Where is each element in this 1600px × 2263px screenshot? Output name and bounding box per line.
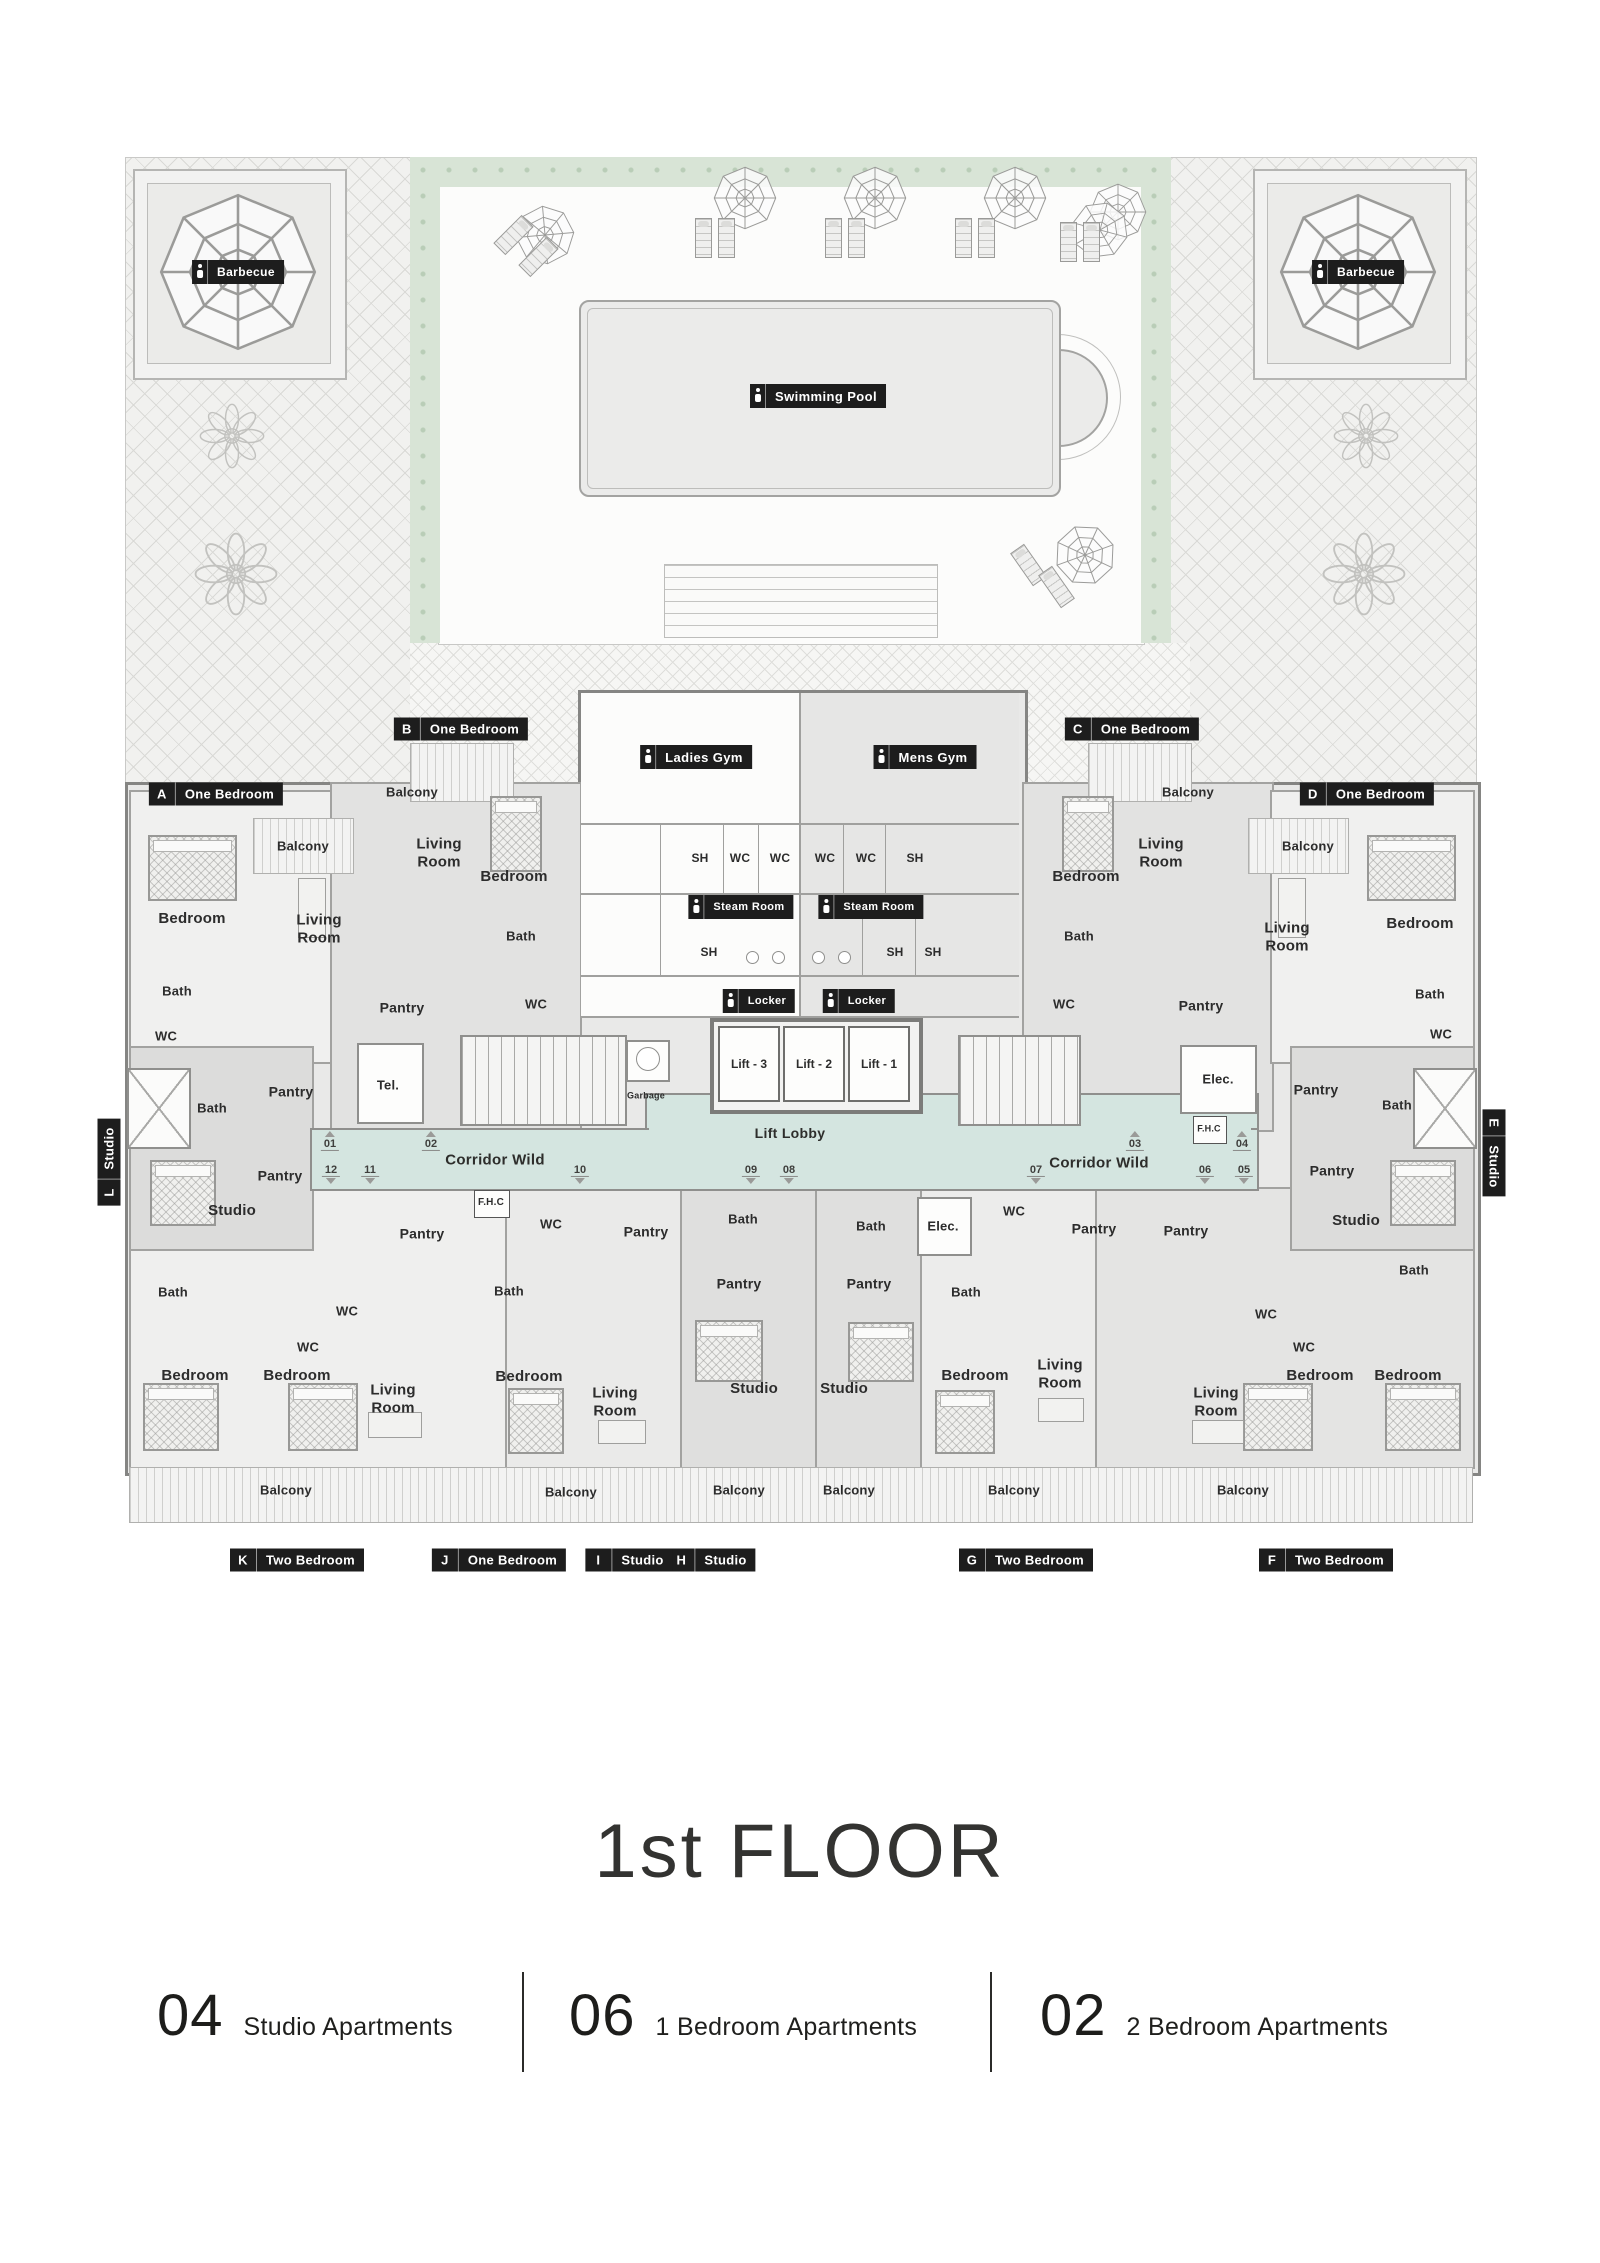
room-label-pantry: Pantry [1179,998,1224,1015]
room-label-bath: Bath [162,983,192,998]
room-label-balcony: Balcony [823,1482,875,1497]
unit-tag-e: EStudio [1483,1109,1506,1196]
room-label-pantry: Pantry [380,1000,425,1017]
room-label-balcony: Balcony [1282,838,1334,853]
corridor-wild-right: Corridor Wild [1049,1155,1149,1172]
room-label-wc: WC [540,1216,562,1231]
barbecue-icon [1312,260,1328,284]
door-swing-arrow [365,1178,375,1184]
page-title: 1st FLOOR [0,1808,1600,1895]
unit-tag-i: IStudio [585,1549,672,1572]
legend-2bed-count: 02 [1040,1982,1107,2049]
bed [150,1160,216,1226]
lift-1-label: Lift - 1 [861,1057,897,1071]
hedge-top [410,157,1171,187]
person-icon [640,745,656,769]
room-label-bedroom: Bedroom [1286,1367,1353,1385]
legend-studio: 04 Studio Apartments [157,1982,453,2049]
unit-tag-k: KTwo Bedroom [230,1549,364,1572]
door-number-02: 02 [422,1131,440,1151]
bed [695,1320,763,1382]
gym-line [581,893,1019,895]
room-label-wc: WC [297,1339,319,1354]
door-number-text: 06 [1196,1164,1214,1177]
room-label-wc: WC [1003,1203,1025,1218]
unit-tag-c: COne Bedroom [1065,718,1199,741]
door-number-01: 01 [321,1131,339,1151]
sofa [598,1420,646,1444]
room-label-elec-: Elec. [1202,1071,1233,1086]
amenity-label-mens-gym: Mens Gym [874,745,977,769]
door-number-11: 11 [361,1164,379,1184]
room-label-balcony: Balcony [1162,784,1214,799]
door-number-text: 09 [742,1164,760,1177]
unit-tag-g: GTwo Bedroom [959,1549,1093,1572]
amenity-label-barbecue-right: Barbecue [1312,260,1404,284]
room-label-balcony: Balcony [713,1482,765,1497]
person-icon [823,989,839,1013]
door-number-text: 07 [1027,1164,1045,1177]
bed [1062,796,1114,872]
room-label-bath: Bath [951,1284,981,1299]
bed [288,1383,358,1451]
room-label-wc: WC [1053,996,1075,1011]
room-label-living-room: Living Room [1258,919,1316,954]
unit-tag-b: BOne Bedroom [394,718,528,741]
room-label-bedroom: Bedroom [480,868,547,886]
lounger [848,218,865,258]
door-number-05: 05 [1235,1164,1253,1184]
tag-divider [98,1179,121,1180]
unit-type: Two Bedroom [257,1553,364,1568]
door-swing-arrow [325,1131,335,1137]
sink [838,951,851,964]
garden-flower [196,400,268,472]
bed [508,1388,564,1454]
door-swing-arrow [326,1178,336,1184]
door-number-text: 10 [571,1164,589,1177]
room-label-bedroom: Bedroom [941,1367,1008,1385]
gym-divider [799,693,801,1018]
person-icon [723,989,739,1013]
gym-cell-line [660,893,661,975]
gym-line [581,823,1019,825]
room-label-pantry: Pantry [400,1226,445,1243]
amenity-label-barbecue-left: Barbecue [192,260,284,284]
room-label-pantry: Pantry [258,1168,303,1185]
room-label-living-room: Living Room [1031,1356,1089,1391]
unit-type: Studio [1487,1136,1502,1196]
unit-letter: L [102,1180,117,1206]
room-label-pantry: Pantry [269,1084,314,1101]
unit-type: Two Bedroom [986,1553,1093,1568]
lift-2: Lift - 2 [783,1026,845,1102]
sofa [1038,1398,1084,1422]
garden-flower [1318,528,1410,620]
shaft-right [1413,1068,1477,1149]
room-label-bedroom: Bedroom [161,1367,228,1385]
unit-letter: K [230,1553,256,1568]
lift-2-label: Lift - 2 [796,1057,832,1071]
room-label-living-room: Living Room [586,1384,644,1419]
person-icon [874,745,890,769]
room-label-wc: WC [336,1303,358,1318]
room-label-pantry: Pantry [847,1276,892,1293]
gym-line [581,975,1019,977]
sink [772,951,785,964]
room-label-studio: Studio [208,1202,256,1220]
floorplan-page: { "title": { "text": "1st FLOOR" }, "leg… [0,0,1600,2263]
door-number-text: 11 [361,1164,379,1177]
stairwell-left [460,1035,627,1126]
room-label-balcony: Balcony [386,784,438,799]
unit-type: One Bedroom [421,722,528,737]
unit-type: One Bedroom [459,1553,566,1568]
sink [746,951,759,964]
door-number-text: 04 [1233,1138,1251,1151]
room-label-wc: WC [856,851,876,865]
amenity-label-steam-room-right: Steam Room [818,895,923,919]
lounger [1060,222,1077,262]
room-label-bedroom: Bedroom [263,1367,330,1385]
door-number-09: 09 [742,1164,760,1184]
room-label-balcony: Balcony [277,838,329,853]
unit-letter: D [1300,787,1326,802]
room-label-bedroom: Bedroom [495,1368,562,1386]
room-label-pantry: Pantry [1294,1082,1339,1099]
door-number-12: 12 [322,1164,340,1184]
room-label-sh: SH [886,945,903,959]
door-number-text: 01 [321,1138,339,1151]
room-label-wc: WC [1293,1339,1315,1354]
person-icon [818,895,834,919]
amenity-label-text: Swimming Pool [766,389,886,404]
room-label-living-room: Living Room [364,1381,422,1416]
unit-letter: G [959,1553,985,1568]
room-label-sh: SH [700,945,717,959]
room-label-bath: Bath [728,1211,758,1226]
room-label-bath: Bath [494,1283,524,1298]
lift-3: Lift - 3 [718,1026,780,1102]
room-label-bedroom: Bedroom [158,910,225,928]
door-number-text: 08 [780,1164,798,1177]
room-label-studio: Studio [730,1380,778,1398]
room-label-wc: WC [525,996,547,1011]
lounger [695,218,712,258]
room-label-wc: WC [155,1028,177,1043]
bed [490,796,542,872]
balcony-strip-bottom [129,1467,1473,1523]
room-label-bath: Bath [1382,1097,1412,1112]
room-label-living-room: Living Room [290,911,348,946]
room-label-bedroom: Bedroom [1374,1367,1441,1385]
door-number-06: 06 [1196,1164,1214,1184]
lift-1: Lift - 1 [848,1026,910,1102]
lounger [978,218,995,258]
gym-cell-line [885,823,886,893]
unit-tag-j: JOne Bedroom [432,1549,566,1572]
door-swing-arrow [1130,1131,1140,1137]
room-label-bath: Bath [1399,1262,1429,1277]
room-label-bath: Bath [197,1100,227,1115]
room-label-wc: WC [770,851,790,865]
amenity-label-text: Locker [739,995,795,1007]
room-label-studio: Studio [820,1380,868,1398]
room-label-balcony: Balcony [988,1482,1040,1497]
garden-flower [190,528,282,620]
room-label-bath: Bath [1064,928,1094,943]
lounger [825,218,842,258]
room-label-wc: WC [815,851,835,865]
gym-cell-line [758,823,759,893]
door-number-08: 08 [780,1164,798,1184]
stairwell-right [958,1035,1081,1126]
room-label-bedroom: Bedroom [1386,915,1453,933]
bed [1243,1383,1313,1451]
room-label-tel-: Tel. [377,1077,399,1092]
bed [143,1383,219,1451]
garbage-room [626,1040,670,1082]
garden-flower [1330,400,1402,472]
unit-letter: E [1487,1109,1502,1135]
door-swing-arrow [1237,1131,1247,1137]
hedge-left [410,157,440,643]
bed [1390,1160,1456,1226]
corridor-joint [649,1124,1251,1134]
room-label-pantry: Pantry [1310,1163,1355,1180]
lounger [1083,222,1100,262]
amenity-label-text: Barbecue [1328,265,1404,279]
legend-divider [522,1972,524,2072]
amenity-label-text: Locker [839,995,895,1007]
door-number-04: 04 [1233,1131,1251,1151]
door-swing-arrow [1200,1178,1210,1184]
bed [848,1322,914,1382]
gym-cell-line [843,823,844,893]
legend-1bed-label: 1 Bedroom Apartments [656,2013,918,2042]
legend-2bed-label: 2 Bedroom Apartments [1127,2013,1389,2042]
lounger [955,218,972,258]
person-icon [688,895,704,919]
door-swing-arrow [1031,1178,1041,1184]
room-label-balcony: Balcony [1217,1482,1269,1497]
unit-type: Studio [612,1553,672,1568]
door-number-03: 03 [1126,1131,1144,1151]
sofa [1192,1420,1244,1444]
unit-tag-h: HStudio [668,1549,755,1572]
unit-type: One Bedroom [1092,722,1199,737]
room-label-living-room: Living Room [410,835,468,870]
door-number-text: 02 [422,1138,440,1151]
unit-letter: F [1259,1553,1285,1568]
room-label-balcony: Balcony [260,1482,312,1497]
amenity-label-ladies-gym: Ladies Gym [640,745,752,769]
unit-type: One Bedroom [1327,787,1434,802]
unit-letter: C [1065,722,1091,737]
unit-tag-l: LStudio [98,1118,121,1205]
bed [935,1390,995,1454]
room-label-pantry: Pantry [1164,1223,1209,1240]
legend: 04 Studio Apartments 06 1 Bedroom Apartm… [0,1972,1600,2072]
door-number-10: 10 [571,1164,589,1184]
door-swing-arrow [784,1178,794,1184]
pool-steps [664,564,938,638]
gym-cell-line [723,823,724,893]
swimmer-icon [750,384,766,408]
room-label-f-h-c: F.H.C [1197,1124,1221,1135]
door-number-text: 12 [322,1164,340,1177]
room-label-wc: WC [1430,1026,1452,1041]
unit-tag-f: FTwo Bedroom [1259,1549,1393,1572]
corridor-wild-left: Corridor Wild [445,1152,545,1169]
door-swing-arrow [575,1178,585,1184]
room-label-wc: WC [730,851,750,865]
lift-3-label: Lift - 3 [731,1057,767,1071]
amenity-label-steam-room-left: Steam Room [688,895,793,919]
unit-letter: B [394,722,420,737]
bed [1367,835,1456,901]
unit-tag-d: DOne Bedroom [1300,783,1434,806]
room-label-elec-: Elec. [927,1218,958,1233]
amenity-label-locker-left: Locker [723,989,795,1013]
room-label-bath: Bath [506,928,536,943]
legend-2bed: 02 2 Bedroom Apartments [1040,1982,1388,2049]
amenity-label-text: Ladies Gym [656,750,752,765]
amenity-label-text: Steam Room [704,901,793,913]
amenity-label-text: Steam Room [834,901,923,913]
door-number-07: 07 [1027,1164,1045,1184]
bed [148,835,237,901]
bed [1385,1383,1461,1451]
room-label-balcony: Balcony [545,1484,597,1499]
room-label-bath: Bath [1415,986,1445,1001]
barbecue-icon [192,260,208,284]
legend-studio-count: 04 [157,1982,224,2049]
room-label-bath: Bath [158,1284,188,1299]
room-label-f-h-c: F.H.C [478,1197,504,1209]
gym-cell-line [660,823,661,893]
unit-letter: J [432,1553,458,1568]
shaft-left [127,1068,191,1149]
door-swing-arrow [426,1131,436,1137]
unit-type: Two Bedroom [1286,1553,1393,1568]
room-label-wc: WC [1255,1306,1277,1321]
lounger [718,218,735,258]
room-label-studio: Studio [1332,1212,1380,1230]
unit-tag-a: AOne Bedroom [149,783,283,806]
room-label-sh: SH [691,851,708,865]
legend-divider [990,1972,992,2072]
amenity-label-locker-right: Locker [823,989,895,1013]
amenity-label-text: Barbecue [208,265,284,279]
sink [812,951,825,964]
door-swing-arrow [1239,1178,1249,1184]
room-label-sh: SH [906,851,923,865]
room-label-living-room: Living Room [1187,1384,1245,1419]
legend-studio-label: Studio Apartments [244,2013,453,2042]
unit-letter: A [149,787,175,802]
door-number-text: 03 [1126,1138,1144,1151]
amenity-label-text: Mens Gym [890,750,977,765]
legend-1bed-count: 06 [569,1982,636,2049]
room-label-pantry: Pantry [624,1224,669,1241]
unit-type: Studio [102,1118,117,1178]
room-label-bath: Bath [856,1218,886,1233]
room-label-garbage: Garbage [627,1091,665,1102]
unit-letter: I [585,1553,611,1568]
amenity-label-swimming-pool: Swimming Pool [750,384,886,408]
unit-type: Studio [695,1553,755,1568]
legend-1bed: 06 1 Bedroom Apartments [569,1982,917,2049]
room-label-bedroom: Bedroom [1052,868,1119,886]
room-label-pantry: Pantry [717,1276,762,1293]
door-number-text: 05 [1235,1164,1253,1177]
room-label-living-room: Living Room [1132,835,1190,870]
lift-lobby-label: Lift Lobby [755,1125,826,1141]
door-swing-arrow [746,1178,756,1184]
unit-type: One Bedroom [176,787,283,802]
room-label-pantry: Pantry [1072,1221,1117,1238]
room-label-sh: SH [924,945,941,959]
